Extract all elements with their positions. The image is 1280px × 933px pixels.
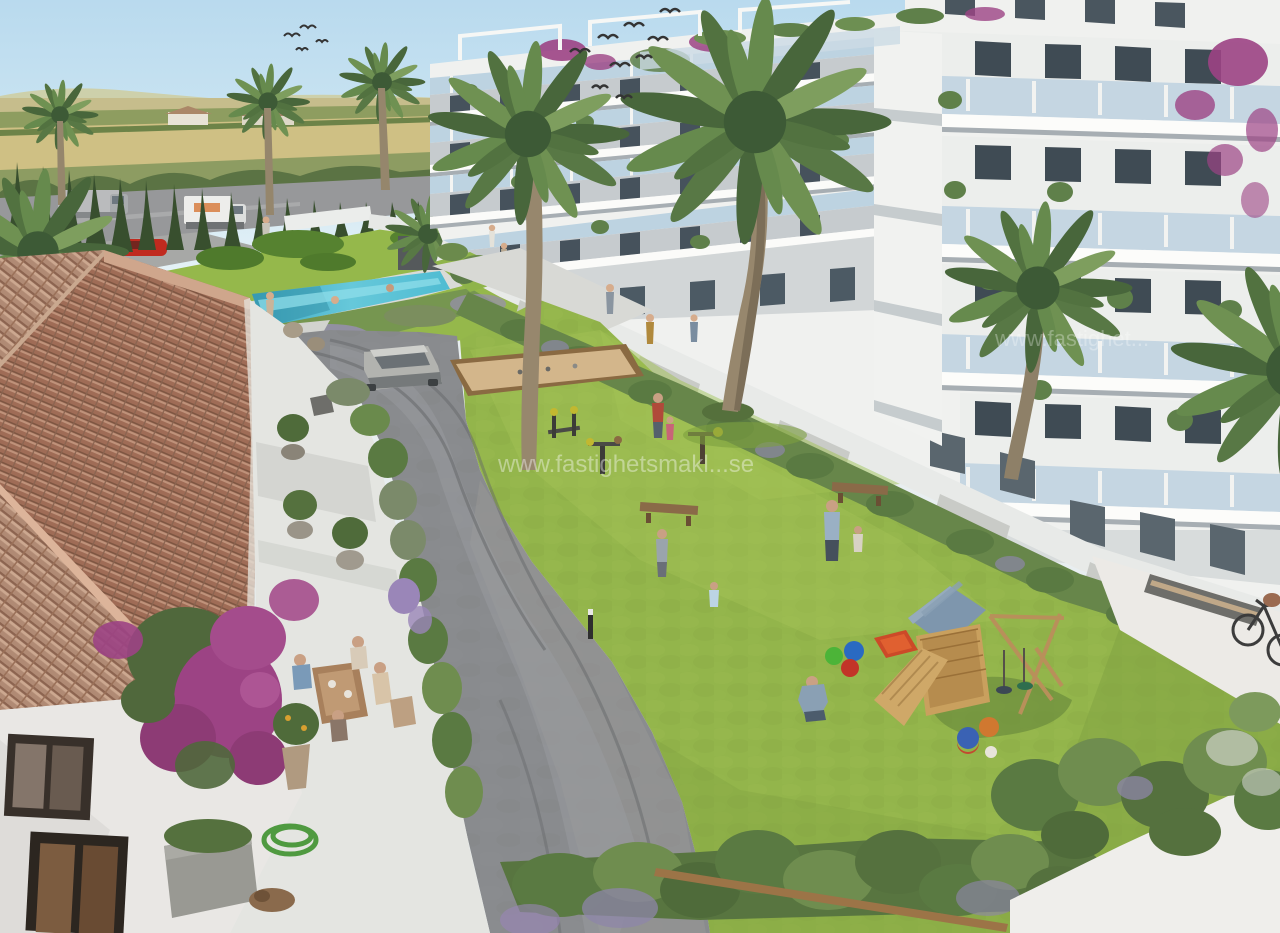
svg-text:www.fastighetsmakl...se: www.fastighetsmakl...se [497, 451, 754, 478]
svg-text:www.fastighet...: www.fastighet... [994, 326, 1149, 351]
